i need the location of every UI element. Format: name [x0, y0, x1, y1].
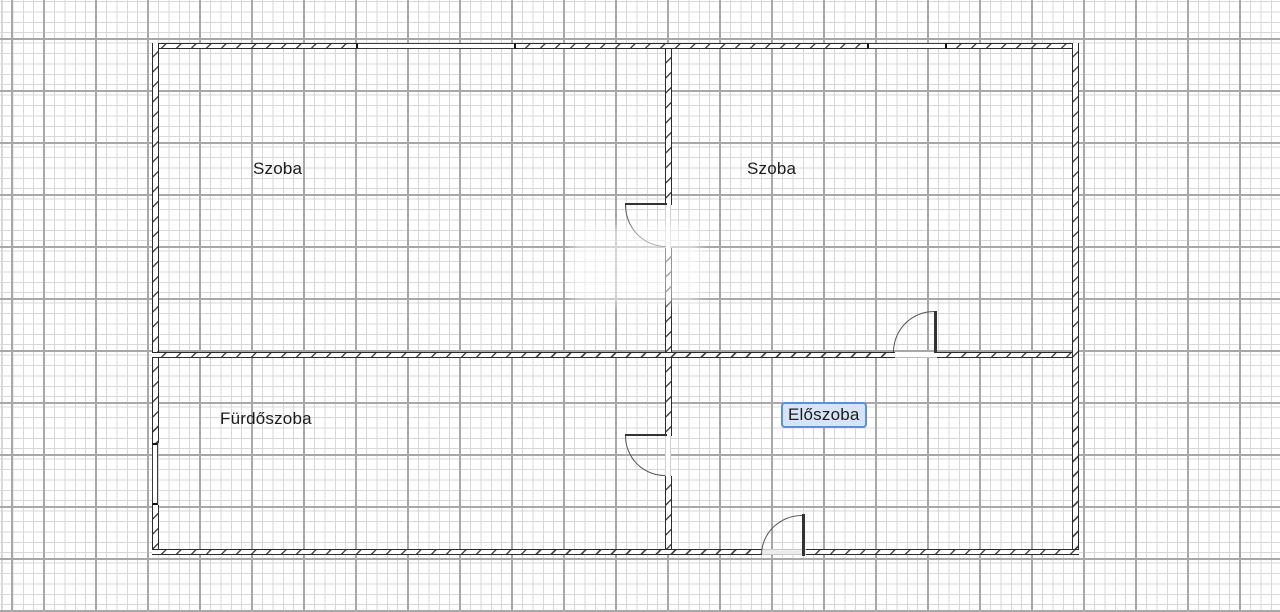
room-label-szoba-left[interactable]: Szoba — [253, 159, 302, 179]
wall-top-right[interactable] — [947, 43, 1079, 49]
room-label-szoba-right[interactable]: Szoba — [747, 159, 796, 179]
wall-mid-vertical-4[interactable] — [665, 476, 672, 549]
wall-left-lower[interactable] — [152, 505, 159, 555]
window-top-left[interactable] — [356, 43, 516, 49]
wall-top-left[interactable] — [152, 43, 356, 49]
wall-mid-horizontal-left[interactable] — [152, 352, 895, 358]
wall-mid-horizontal-right[interactable] — [937, 352, 1072, 358]
wall-bottom-left[interactable] — [152, 549, 762, 555]
wall-top-middle[interactable] — [516, 43, 867, 49]
wall-bottom-right[interactable] — [806, 549, 1079, 555]
wall-left-upper[interactable] — [152, 43, 159, 443]
window-top-right[interactable] — [867, 43, 947, 49]
wall-mid-vertical-1[interactable] — [665, 49, 672, 205]
watermark — [572, 226, 700, 304]
room-label-furdoszoba[interactable]: Fürdőszoba — [220, 409, 312, 429]
door-leaf-right[interactable] — [934, 311, 937, 353]
door-opening-lower — [665, 436, 671, 476]
door-opening-right — [895, 352, 937, 358]
door-swing-arc-entrance — [761, 515, 802, 555]
plan-canvas: Szoba Szoba Fürdőszoba Előszoba — [0, 0, 1280, 612]
door-swing-arc-right — [893, 311, 934, 352]
room-label-eloszoba-selected[interactable]: Előszoba — [781, 402, 867, 428]
window-left[interactable] — [152, 443, 158, 505]
wall-right[interactable] — [1072, 43, 1079, 555]
wall-mid-vertical-3[interactable] — [665, 358, 672, 436]
door-swing-arc-lower — [625, 436, 665, 476]
door-leaf-entrance[interactable] — [802, 514, 805, 556]
